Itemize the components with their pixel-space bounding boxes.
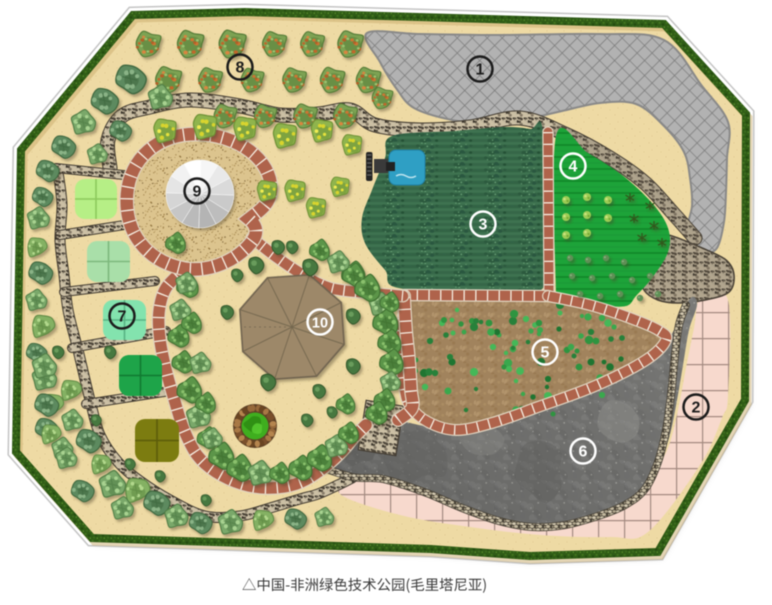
svg-text:8: 8 (236, 60, 245, 77)
svg-text:10: 10 (312, 316, 328, 332)
svg-text:9: 9 (193, 184, 202, 201)
svg-text:6: 6 (579, 444, 588, 461)
svg-text:5: 5 (541, 345, 550, 362)
svg-text:7: 7 (118, 309, 127, 326)
svg-text:2: 2 (692, 400, 701, 417)
svg-text:3: 3 (479, 217, 488, 234)
svg-text:1: 1 (476, 62, 485, 79)
svg-text:4: 4 (569, 159, 578, 176)
